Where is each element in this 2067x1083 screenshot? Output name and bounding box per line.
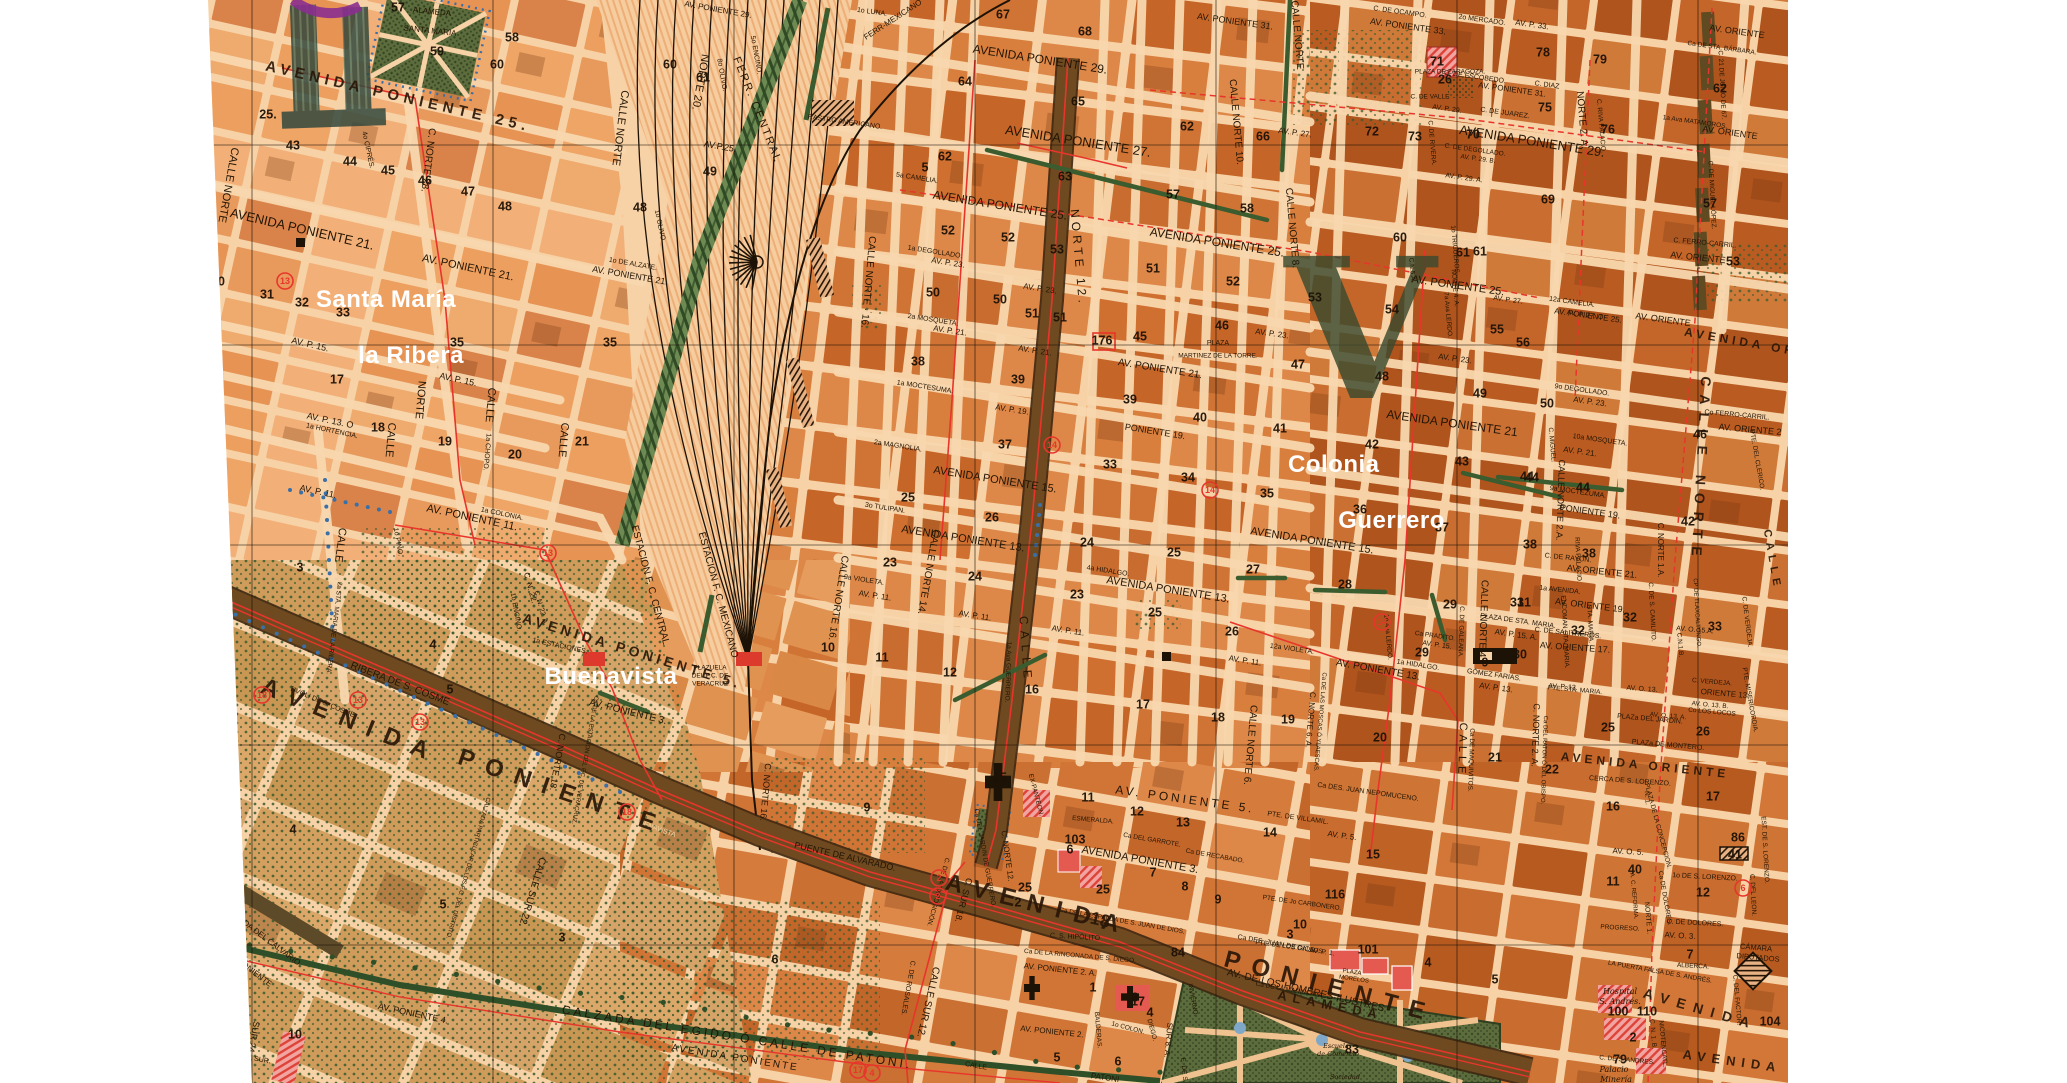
block-number: 25 bbox=[1018, 880, 1032, 894]
street-label: VERACRUZ bbox=[692, 681, 728, 688]
tram-route-number: 2 bbox=[936, 873, 941, 883]
block-number: 5 bbox=[1492, 972, 1499, 986]
block-number: 24 bbox=[968, 569, 982, 583]
block-number: 3 bbox=[559, 930, 566, 944]
block-number: 65 bbox=[1071, 94, 1085, 108]
block-number: 49 bbox=[1473, 386, 1487, 400]
block-number: 13 bbox=[1176, 815, 1190, 829]
block-number: 23 bbox=[883, 555, 897, 569]
block-number: 38 bbox=[911, 354, 925, 368]
block-number: 18 bbox=[371, 420, 385, 434]
block-number: 9 bbox=[1482, 655, 1489, 669]
street-label: C. DE VALLE bbox=[1411, 94, 1451, 101]
tram-route-number: 13 bbox=[353, 695, 363, 705]
block-number: 25 bbox=[1148, 605, 1162, 619]
street-label: Palacio bbox=[1599, 1065, 1629, 1074]
block-number: 54 bbox=[1385, 302, 1399, 316]
block-number: 51 bbox=[1053, 310, 1067, 324]
block-number: 39 bbox=[1123, 392, 1137, 406]
block-number: 4 bbox=[1147, 1005, 1154, 1019]
block-number: 11 bbox=[1081, 790, 1094, 804]
block-number: 47 bbox=[1291, 357, 1305, 371]
block-number: 5 bbox=[922, 160, 929, 174]
street-label: AV. O. 5. bbox=[1612, 846, 1644, 857]
block-number: 4 bbox=[290, 822, 297, 836]
historical-city-map: VALAMEDASANTA MARIAAVENIDA PONIENTE 25.C… bbox=[0, 0, 2067, 1083]
block-number: 31 bbox=[1517, 595, 1531, 609]
block-number: 10 bbox=[288, 1027, 302, 1041]
tram-route-number: 14 bbox=[1047, 440, 1057, 450]
block-number: 20 bbox=[508, 447, 522, 461]
block-number: 75 bbox=[1538, 100, 1552, 114]
block-number: 50 bbox=[993, 292, 1007, 306]
block-number: 21 bbox=[575, 434, 589, 448]
block-number: 25 bbox=[1096, 882, 1110, 896]
block-number: 38 bbox=[1523, 537, 1537, 551]
block-number: 45 bbox=[381, 163, 395, 177]
block-number: 61 bbox=[1473, 244, 1487, 258]
block-number: 43 bbox=[1455, 454, 1469, 468]
block-number: 35 bbox=[1260, 486, 1274, 500]
block-number: 2 bbox=[1015, 895, 1022, 909]
block-number: 55 bbox=[1490, 322, 1504, 336]
block-number: 22 bbox=[1545, 762, 1559, 776]
block-number: 26 bbox=[1696, 724, 1710, 738]
block-number: 25. bbox=[259, 107, 276, 121]
block-number: 46 bbox=[1215, 318, 1229, 332]
tram-route-number: 2 bbox=[935, 891, 940, 901]
block-number: 3 bbox=[1287, 927, 1294, 941]
miguel-lopez-blocks bbox=[1692, 276, 1707, 311]
block-number: 33 bbox=[1708, 619, 1722, 633]
block-number: 50 bbox=[926, 285, 940, 299]
block-number: 24 bbox=[1080, 535, 1094, 549]
block-number: 33 bbox=[1103, 457, 1117, 471]
block-number: 5 bbox=[440, 897, 447, 911]
block-number: 7 bbox=[1687, 947, 1694, 961]
block-number: 62 bbox=[938, 149, 952, 163]
neighborhood-label-colonia-guerrero: Colonia Guerrero bbox=[1288, 451, 1445, 535]
block-number: 44 bbox=[1520, 469, 1534, 483]
block-number: 1 bbox=[1090, 980, 1097, 994]
block-number: 42 bbox=[1365, 437, 1379, 451]
tram-route-number: 18 bbox=[622, 807, 632, 817]
block-number: 39 bbox=[1011, 372, 1025, 386]
block-number: 29 bbox=[1443, 597, 1457, 611]
block-number: 66 bbox=[1256, 129, 1270, 143]
neighborhood-label-santa-maria: Santa María la Ribera bbox=[308, 286, 464, 370]
map-screenshot: VALAMEDASANTA MARIAAVENIDA PONIENTE 25.C… bbox=[0, 0, 2067, 1083]
block-number: 26 bbox=[1225, 624, 1239, 638]
block-number: 56 bbox=[1516, 335, 1530, 349]
block-number: 4 bbox=[430, 637, 437, 651]
block-number: 42 bbox=[1681, 514, 1695, 528]
block-number: 67 bbox=[996, 7, 1010, 21]
block-number: 79 bbox=[1593, 52, 1607, 66]
block-number: 61 bbox=[1456, 245, 1470, 259]
block-number: 46 bbox=[1693, 427, 1707, 441]
block-number: 28 bbox=[1338, 577, 1352, 591]
tram-route-number: 14 bbox=[1205, 485, 1215, 495]
block-number: 15 bbox=[993, 770, 1007, 784]
garden-block bbox=[1698, 243, 1788, 303]
block-number: 51 bbox=[1025, 306, 1039, 320]
block-number: 53 bbox=[1308, 290, 1322, 304]
block-number: 176 bbox=[1092, 333, 1113, 347]
block-number: 64 bbox=[958, 74, 972, 88]
street-label: Hospital bbox=[1602, 987, 1638, 996]
block-number: 79 bbox=[1613, 1052, 1627, 1066]
block-number: 116 bbox=[1325, 887, 1345, 901]
block-number: 32 bbox=[295, 295, 309, 309]
neighborhood-label-buenavista: Buenavista bbox=[544, 663, 677, 691]
block-number: 69 bbox=[1541, 192, 1555, 206]
block-number: 50 bbox=[1540, 396, 1554, 410]
block-number: 5 bbox=[447, 682, 454, 696]
block-number: 19 bbox=[438, 434, 452, 448]
sheet-roman-numeral-V: V bbox=[1282, 215, 1439, 444]
block-number: 18 bbox=[1211, 710, 1225, 724]
block-number: 26 bbox=[985, 510, 999, 524]
block-number: 37 bbox=[998, 437, 1012, 451]
block-number: 78 bbox=[1536, 45, 1550, 59]
tram-route-number: 4 bbox=[869, 1068, 874, 1078]
block-number: 19 bbox=[1281, 712, 1295, 726]
block-number: 103 bbox=[1065, 832, 1086, 846]
street-label: PLAZUELA bbox=[693, 665, 727, 672]
block-number: 44 bbox=[1576, 480, 1590, 494]
block-number: 9 bbox=[864, 800, 871, 814]
block-number: 32 bbox=[1571, 623, 1585, 637]
block-number: 58 bbox=[1240, 201, 1254, 215]
block-number: 57 bbox=[391, 0, 405, 14]
block-number: 23 bbox=[1070, 587, 1084, 601]
block-number: 17 bbox=[1136, 697, 1150, 711]
block-number: 20 bbox=[1373, 730, 1387, 744]
block-number: 83 bbox=[1345, 1042, 1359, 1056]
block-number: 4 bbox=[1425, 955, 1432, 969]
block-number: 84 bbox=[1171, 945, 1185, 959]
block-number: 76 bbox=[1601, 122, 1615, 136]
block-number: 29 bbox=[1415, 645, 1429, 659]
tram-route-number: 18 bbox=[257, 690, 267, 700]
block-number: 72 bbox=[1365, 124, 1379, 138]
street-label: MARTINEZ DE LA TORRE. bbox=[1178, 353, 1258, 360]
block-number: 70 bbox=[1466, 127, 1480, 141]
block-number: 45 bbox=[1133, 329, 1147, 343]
block-number: 6 bbox=[1115, 1054, 1122, 1068]
block-number: 59 bbox=[430, 44, 444, 58]
block-number: 25 bbox=[1167, 545, 1181, 559]
block-number: 32 bbox=[1623, 610, 1637, 624]
block-number: 26 bbox=[1438, 72, 1452, 86]
block-number: 16 bbox=[1025, 682, 1039, 696]
block-number: 62 bbox=[1713, 81, 1727, 95]
block-number: 38 bbox=[1582, 546, 1596, 560]
block-number: 61 bbox=[696, 70, 710, 84]
block-number: 12 bbox=[943, 665, 957, 679]
block-number: 51 bbox=[1146, 261, 1160, 275]
block-number: 57 bbox=[1703, 196, 1717, 210]
block-number: 40 bbox=[1628, 862, 1642, 876]
block-number: 10 bbox=[1293, 917, 1307, 931]
block-number: 63 bbox=[1058, 169, 1072, 183]
block-number: 53 bbox=[1726, 254, 1740, 268]
street-label: C. NORTE 1.A. bbox=[1656, 523, 1665, 578]
block-number: 16 bbox=[1606, 799, 1620, 813]
block-number: 7 bbox=[1150, 865, 1157, 879]
block-number: 40 bbox=[1193, 410, 1207, 424]
block-number: 6 bbox=[772, 952, 779, 966]
block-number: 60 bbox=[1393, 230, 1407, 244]
block-number: 47 bbox=[461, 184, 475, 198]
block-number: 52 bbox=[1226, 274, 1240, 288]
block-number: 46 bbox=[418, 173, 432, 187]
block-number: 2 bbox=[1630, 1030, 1637, 1044]
block-number: 27 bbox=[1246, 562, 1260, 576]
block-number: 21 bbox=[1488, 750, 1502, 764]
block-number: 71 bbox=[1430, 54, 1444, 68]
block-number: 30 bbox=[1513, 647, 1527, 661]
block-number: 12 bbox=[1130, 804, 1144, 818]
block-number: 43 bbox=[286, 138, 300, 152]
tram-route-number: 14 bbox=[1377, 617, 1387, 627]
block-number: 68 bbox=[1078, 24, 1092, 38]
tram-route-number: 6 bbox=[1740, 883, 1745, 893]
street-label: Minería bbox=[1599, 1075, 1632, 1083]
block-number: 62 bbox=[1180, 119, 1194, 133]
block-number: 48 bbox=[498, 199, 512, 213]
block-number: 5 bbox=[1054, 1050, 1061, 1064]
block-number: 11 bbox=[1606, 874, 1619, 888]
block-number: 52 bbox=[1001, 230, 1015, 244]
block-number: 8 bbox=[1182, 879, 1189, 893]
street-label: DEL F.C. DE bbox=[692, 673, 729, 680]
block-number: 58 bbox=[505, 30, 519, 44]
block-number: 17 bbox=[1131, 994, 1145, 1008]
block-number: 110 bbox=[1637, 1004, 1657, 1018]
block-number: 57 bbox=[1166, 187, 1180, 201]
block-number: 41 bbox=[1728, 847, 1742, 861]
block-number: 15 bbox=[1366, 847, 1380, 861]
block-number: 60 bbox=[663, 57, 677, 71]
street-label: PLAZA bbox=[1207, 340, 1230, 347]
block-number: 9 bbox=[1215, 892, 1222, 906]
tram-route-number: 13 bbox=[415, 717, 425, 727]
block-number: 3 bbox=[297, 560, 304, 574]
block-number: 41 bbox=[1273, 421, 1287, 435]
block-number: 100 bbox=[1608, 1004, 1629, 1018]
block-number: 31 bbox=[260, 287, 274, 301]
garden-block bbox=[360, 528, 550, 663]
tram-route-number: 17 bbox=[853, 1065, 863, 1075]
block-number: 73 bbox=[1408, 129, 1422, 143]
block-number: 52 bbox=[941, 223, 955, 237]
block-number: 17 bbox=[330, 372, 344, 386]
block-number: 10 bbox=[821, 640, 835, 654]
tram-route-number: 13 bbox=[280, 276, 290, 286]
block-number: 17 bbox=[1706, 789, 1720, 803]
block-number: 30 bbox=[211, 274, 225, 288]
block-number: 14 bbox=[1263, 825, 1277, 839]
block-number: 44 bbox=[343, 154, 357, 168]
block-number: 25 bbox=[1601, 720, 1615, 734]
block-number: 60 bbox=[490, 57, 504, 71]
block-number: 48 bbox=[1375, 369, 1389, 383]
block-number: 35 bbox=[603, 335, 617, 349]
street-label: AV. O. 3. bbox=[1664, 930, 1696, 941]
block-number: 48 bbox=[633, 200, 647, 214]
tram-route-number: 13 bbox=[543, 548, 553, 558]
street-label: Sociedad bbox=[1330, 1073, 1360, 1081]
block-number: 11 bbox=[875, 650, 888, 664]
block-number: 86 bbox=[1731, 830, 1745, 844]
block-number: 101 bbox=[1358, 942, 1379, 956]
block-number: 12 bbox=[1696, 885, 1710, 899]
block-number: 49 bbox=[703, 164, 717, 178]
block-number: 34 bbox=[1181, 470, 1195, 484]
block-number: 25 bbox=[901, 490, 915, 504]
block-number: 104 bbox=[1760, 1014, 1781, 1028]
block-number: 53 bbox=[1050, 242, 1064, 256]
